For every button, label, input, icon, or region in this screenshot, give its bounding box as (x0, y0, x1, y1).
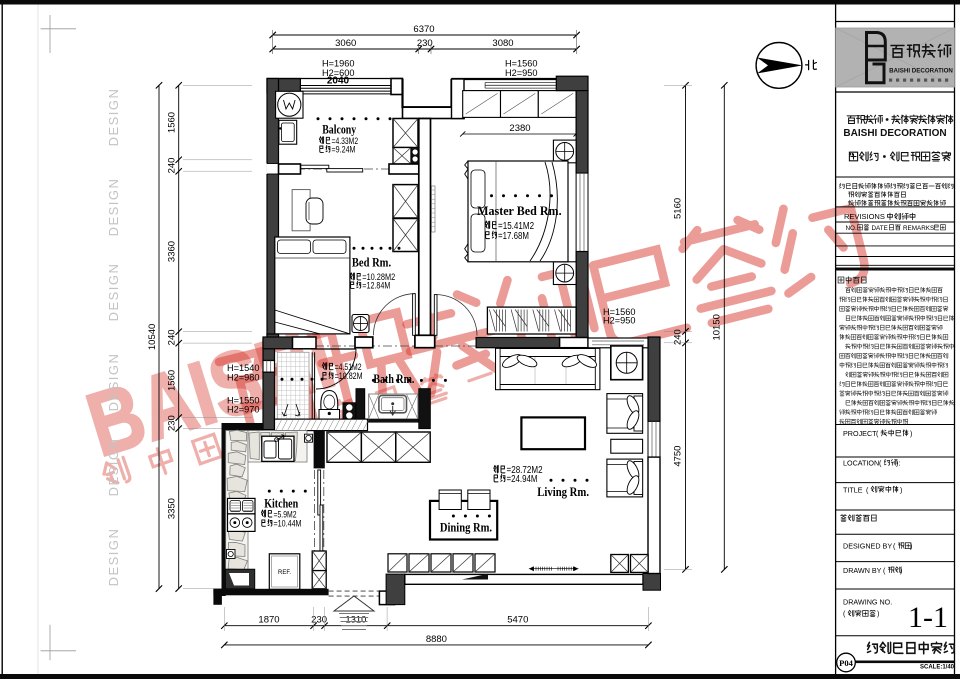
svg-text:3350: 3350 (167, 498, 178, 519)
svg-text:2040: 2040 (327, 76, 350, 87)
svg-text:1-1: 1-1 (908, 601, 948, 634)
svg-text:H=1960: H=1960 (322, 59, 354, 69)
svg-text:BAISHI DECORATION: BAISHI DECORATION (843, 128, 946, 139)
svg-text:=10.82M: =10.82M (335, 371, 363, 382)
svg-text:230: 230 (167, 415, 178, 431)
svg-text:5160: 5160 (673, 198, 684, 219)
svg-text:DESIGN: DESIGN (106, 528, 121, 587)
svg-text:H2=980: H2=980 (227, 373, 259, 383)
svg-text:DESIGN: DESIGN (106, 263, 121, 322)
svg-text:H2=950: H2=950 (505, 68, 537, 78)
svg-text:Living Rm.: Living Rm. (537, 485, 589, 499)
svg-text:2380: 2380 (509, 123, 530, 134)
svg-text:BAISHI DECORATION: BAISHI DECORATION (889, 68, 953, 75)
svg-text:3060: 3060 (335, 38, 356, 49)
svg-text:=17.68M: =17.68M (498, 231, 529, 242)
svg-text:Bed Rm.: Bed Rm. (352, 256, 391, 270)
svg-text:8880: 8880 (426, 634, 447, 645)
svg-text:P04: P04 (839, 658, 853, 668)
svg-text:DESIGNED BY: DESIGNED BY (843, 542, 892, 551)
svg-text:DRAWING NO.: DRAWING NO. (843, 598, 892, 607)
svg-text:230: 230 (417, 38, 433, 49)
svg-text:1560: 1560 (167, 370, 178, 391)
svg-text:TITLE: TITLE (843, 485, 863, 494)
svg-text:H2=950: H2=950 (603, 316, 635, 326)
svg-text:DATE: DATE (872, 225, 888, 232)
svg-text:5470: 5470 (507, 615, 528, 626)
svg-text:3360: 3360 (167, 241, 178, 262)
svg-text:=9.24M: =9.24M (332, 145, 356, 156)
svg-text:6370: 6370 (413, 24, 434, 35)
svg-text:10150: 10150 (711, 314, 722, 340)
svg-text:1310: 1310 (345, 615, 366, 626)
svg-text:): ) (910, 542, 912, 551)
svg-text:1560: 1560 (167, 112, 178, 133)
svg-text:DESIGN: DESIGN (106, 353, 121, 412)
svg-text:REMARKS: REMARKS (903, 225, 934, 232)
svg-text:Dining Rm.: Dining Rm. (440, 521, 492, 535)
svg-text:):: ): (896, 459, 900, 468)
svg-text:DESIGN: DESIGN (106, 178, 121, 237)
svg-text:): ) (877, 609, 879, 618)
svg-text:": " (947, 152, 952, 163)
svg-text:NO.: NO. (846, 225, 857, 232)
svg-text:REVISIONS: REVISIONS (844, 212, 885, 221)
svg-text:1870: 1870 (258, 615, 279, 626)
svg-text:SCALE:1/40: SCALE:1/40 (920, 665, 955, 671)
svg-text:Kitchen: Kitchen (264, 496, 298, 510)
svg-text:LOCATION: LOCATION (843, 459, 879, 468)
svg-text:Balcony: Balcony (322, 123, 357, 137)
svg-text:10540: 10540 (147, 324, 158, 350)
svg-text:3080: 3080 (492, 38, 513, 49)
svg-text:DESIGN: DESIGN (106, 88, 121, 147)
svg-text:): ) (900, 485, 902, 494)
svg-text:Master Bed Rm.: Master Bed Rm. (477, 204, 561, 218)
svg-text:): ) (910, 429, 912, 438)
svg-text:4750: 4750 (673, 446, 684, 467)
svg-text:H2=970: H2=970 (227, 405, 259, 415)
svg-text:DRAWN BY: DRAWN BY (843, 566, 882, 575)
svg-text:H=1560: H=1560 (505, 59, 537, 69)
svg-text:PROJECT: PROJECT (843, 429, 877, 438)
svg-text:REF.: REF. (278, 570, 291, 576)
svg-text:240: 240 (167, 158, 178, 174)
svg-text:240: 240 (167, 329, 178, 345)
svg-text:=24.94M: =24.94M (507, 474, 538, 485)
svg-text:=10.44M: =10.44M (274, 519, 302, 530)
svg-text:DESIGN: DESIGN (106, 438, 121, 497)
svg-text:): ) (900, 566, 902, 575)
svg-text:H=1540: H=1540 (227, 363, 259, 373)
svg-text:Bath Rm.: Bath Rm. (373, 372, 414, 386)
svg-text:=12.84M: =12.84M (362, 281, 390, 292)
